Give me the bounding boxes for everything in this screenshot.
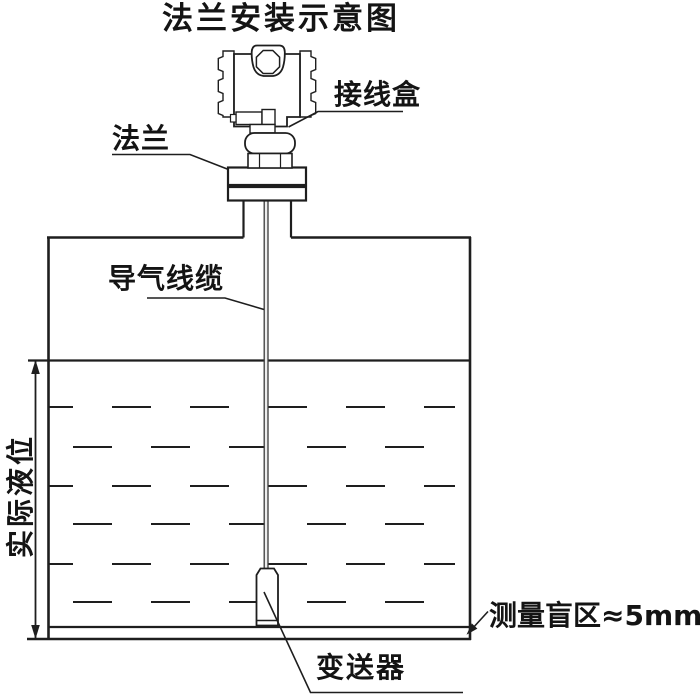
- liquid-dashes: [48, 407, 455, 602]
- stem-base: [250, 125, 275, 134]
- leader-air-cable: [147, 298, 264, 310]
- head-left-ribs: [218, 51, 234, 117]
- diagram-title: 法兰安装示意图: [150, 3, 412, 36]
- label-blind-zone: 测量盲区≈5mm: [489, 601, 700, 631]
- diagram-canvas: 法兰安装示意图 接线盒 法兰 导气线缆 实际液位 测量盲区≈5mm 变送器: [0, 0, 700, 700]
- air-cable-line: [264, 200, 268, 569]
- label-junction-box: 接线盒: [334, 80, 421, 110]
- terminal-block: [236, 112, 262, 125]
- head-right-ribs: [300, 51, 316, 117]
- swivel-capsule: [245, 133, 295, 154]
- transmitter-head: [218, 46, 315, 169]
- label-air-cable: 导气线缆: [108, 264, 224, 294]
- hex-nut: [248, 154, 292, 169]
- label-flange: 法兰: [112, 124, 170, 154]
- tank-outline: [27, 237, 471, 640]
- leader-flange: [112, 155, 229, 170]
- label-transmitter: 变送器: [316, 653, 406, 683]
- terminal-tab: [231, 115, 237, 123]
- stem-block: [262, 110, 275, 125]
- label-actual-level: 实际液位: [6, 426, 36, 566]
- head-cap-bolt: [256, 51, 279, 74]
